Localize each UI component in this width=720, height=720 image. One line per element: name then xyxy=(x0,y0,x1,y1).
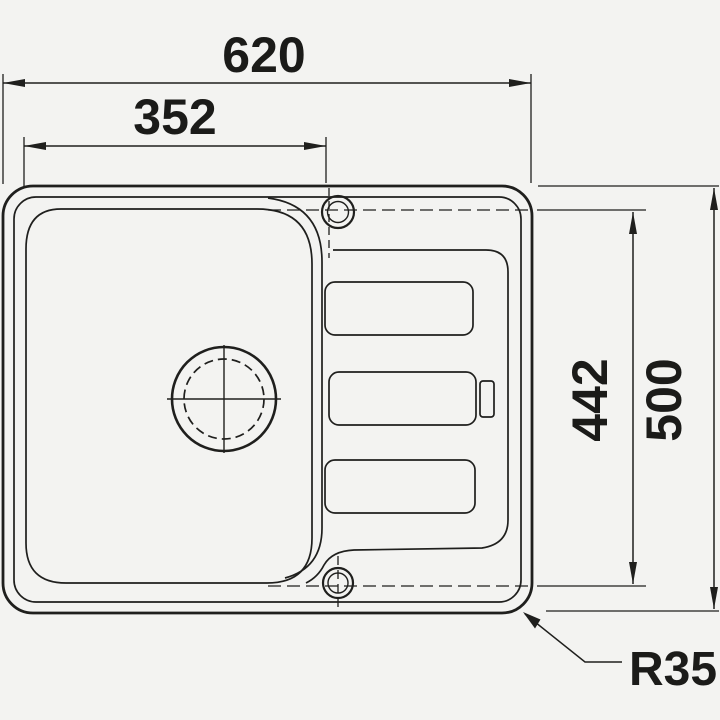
drainboard-notch xyxy=(480,381,494,417)
radius-callout-r35: R35 xyxy=(523,612,717,696)
drawing-page: 620 352 442 500 R35 xyxy=(0,0,720,720)
tap-hole-top xyxy=(322,196,354,228)
drain-opening xyxy=(167,345,281,453)
drainboard-edge xyxy=(306,250,508,583)
dim-620-arrow-left xyxy=(3,79,25,87)
dimension-352: 352 xyxy=(24,89,326,186)
r35-leader-arrow xyxy=(523,612,541,629)
r35-label: R35 xyxy=(629,643,717,696)
dim-352-arrow-right xyxy=(304,142,326,150)
dimension-620: 620 xyxy=(3,27,531,184)
dim-442-arrow-up xyxy=(629,212,637,234)
drainboard-rib-middle xyxy=(329,372,476,425)
sink-technical-drawing: 620 352 442 500 R35 xyxy=(0,0,720,720)
drainboard-rib-top xyxy=(325,282,473,335)
dim-620-arrow-right xyxy=(509,79,531,87)
dimension-442: 442 xyxy=(537,210,646,586)
dim-442-label: 442 xyxy=(562,358,618,441)
sink-body xyxy=(3,186,532,613)
bowl-inner-edge xyxy=(26,209,312,583)
dim-352-arrow-left xyxy=(24,142,46,150)
tap-hole-inner-circle xyxy=(328,202,349,223)
dim-500-arrow-up xyxy=(710,188,718,210)
dim-352-label: 352 xyxy=(133,89,216,145)
drainboard-rib-bottom xyxy=(325,460,475,513)
dim-620-label: 620 xyxy=(222,27,305,83)
dim-500-label: 500 xyxy=(636,358,692,441)
dim-500-arrow-down xyxy=(710,587,718,609)
r35-leader-line xyxy=(525,614,622,662)
dim-442-arrow-down xyxy=(629,562,637,584)
